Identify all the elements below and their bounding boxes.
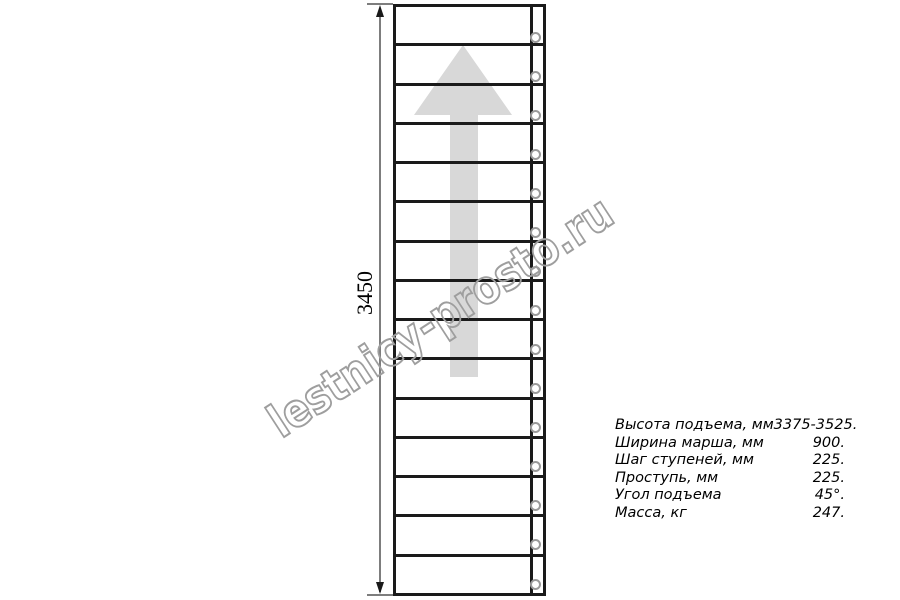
fastener-circle: [530, 71, 541, 82]
dimension-arrowhead-bottom-icon: [376, 582, 384, 594]
spec-row: Угол подъема45°.: [615, 487, 845, 505]
fastener-circle: [530, 305, 541, 316]
fasteners: [396, 7, 543, 593]
fastener-circle: [530, 500, 541, 511]
spec-row: Масса, кг247.: [615, 505, 845, 523]
spec-value: 45°.: [815, 487, 845, 505]
dimension-extension-line-bottom: [367, 594, 393, 596]
fastener-circle: [530, 422, 541, 433]
fastener-circle: [530, 149, 541, 160]
fastener-circle: [530, 383, 541, 394]
spec-row: Высота подъема, мм3375-3525.: [615, 417, 845, 435]
spec-label: Шаг ступеней, мм: [615, 452, 754, 470]
spec-value: 900.: [813, 435, 845, 453]
dimension-label: 3450: [352, 268, 374, 318]
fastener-circle: [530, 110, 541, 121]
dimension-line: [379, 8, 381, 592]
spec-label: Высота подъема, мм: [615, 417, 774, 435]
spec-value: 3375-3525.: [774, 417, 858, 435]
drawing-canvas: 3450 Высота подъема, мм3375-3525.Ширина …: [0, 0, 900, 600]
spec-value: 225.: [813, 452, 845, 470]
fastener-circle: [530, 188, 541, 199]
fastener-circle: [530, 539, 541, 550]
spec-row: Проступь, мм225.: [615, 470, 845, 488]
dimension-arrowhead-top-icon: [376, 5, 384, 17]
specifications-table: Высота подъема, мм3375-3525.Ширина марша…: [615, 417, 845, 522]
spec-row: Ширина марша, мм900.: [615, 435, 845, 453]
spec-label: Ширина марша, мм: [615, 435, 764, 453]
spec-value: 247.: [813, 505, 845, 523]
fastener-circle: [530, 344, 541, 355]
fastener-circle: [530, 461, 541, 472]
fastener-circle: [530, 227, 541, 238]
spec-label: Масса, кг: [615, 505, 687, 523]
spec-label: Угол подъема: [615, 487, 722, 505]
fastener-circle: [530, 579, 541, 590]
fastener-circle: [530, 32, 541, 43]
spec-label: Проступь, мм: [615, 470, 718, 488]
staircase-plan: [393, 4, 546, 596]
fastener-circle: [530, 266, 541, 277]
spec-row: Шаг ступеней, мм225.: [615, 452, 845, 470]
spec-value: 225.: [813, 470, 845, 488]
